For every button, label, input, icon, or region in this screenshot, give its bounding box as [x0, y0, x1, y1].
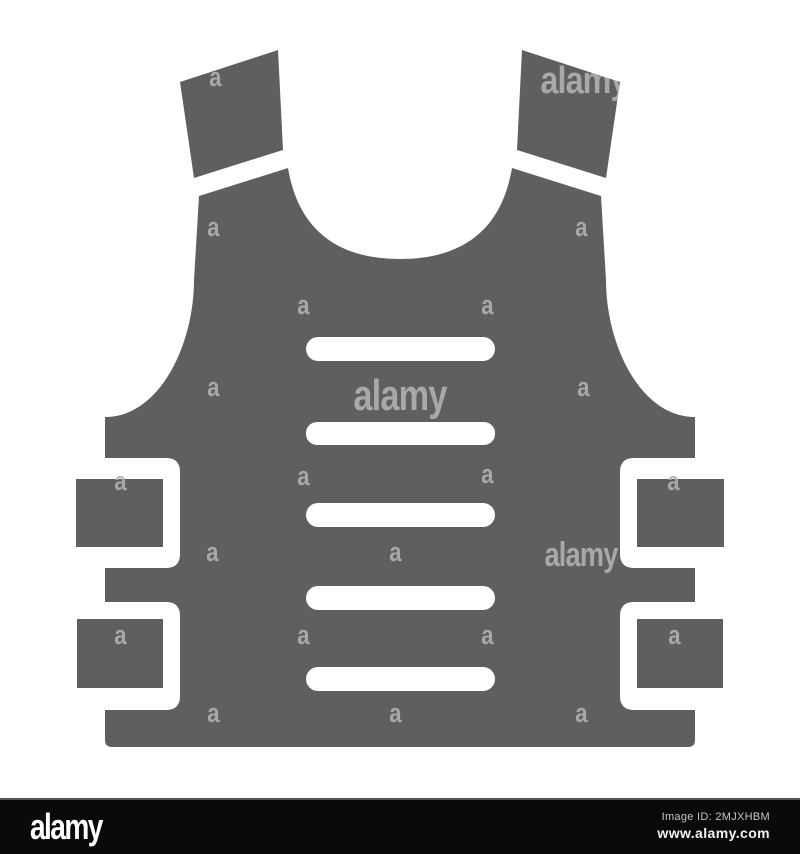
watermark-text: alamy: [540, 60, 629, 102]
watermark-text: a: [575, 699, 588, 728]
watermark-text: a: [481, 291, 494, 320]
vest-slat-2: [306, 422, 495, 445]
vest-right-lower-pouch: [637, 619, 723, 688]
watermark-text: a: [207, 373, 220, 402]
watermark-text: a: [297, 462, 310, 491]
watermark-text: alamy: [544, 535, 618, 574]
watermark-text: a: [114, 621, 127, 650]
vest-slat-3: [306, 503, 495, 527]
vest-body: [105, 168, 695, 747]
watermark-text: a: [207, 213, 220, 242]
vest-right-upper-pouch: [637, 479, 724, 547]
watermark-text: a: [575, 213, 588, 242]
vest-slat-1: [306, 337, 495, 361]
watermark-text: a: [481, 621, 494, 650]
watermark-text: alamy: [353, 371, 447, 420]
stock-photo-page: aalamyaaaaaalamyaaaaaaaalamyaaaaaaa alam…: [0, 0, 800, 854]
watermark-text: a: [389, 538, 402, 567]
vest-slat-4: [306, 586, 495, 610]
vest-left-strap: [180, 50, 283, 178]
watermark-text: a: [206, 538, 219, 567]
watermark-text: a: [389, 699, 402, 728]
vest-slat-5: [306, 667, 495, 691]
watermark-text: a: [209, 63, 222, 92]
watermark-text: a: [481, 460, 494, 489]
watermark-text: a: [297, 621, 310, 650]
watermark-text: a: [207, 699, 220, 728]
alamy-url-text: www.alamy.com: [657, 825, 770, 843]
alamy-footer-bar: alamy Image ID: 2MJXHBM www.alamy.com: [0, 798, 800, 854]
image-id-text: Image ID: 2MJXHBM: [657, 811, 770, 825]
stock-image-canvas: aalamyaaaaaalamyaaaaaaaalamyaaaaaaa: [0, 0, 800, 798]
watermark-text: a: [667, 467, 680, 496]
watermark-text: a: [297, 291, 310, 320]
footer-info: Image ID: 2MJXHBM www.alamy.com: [657, 811, 770, 842]
watermark-text: a: [577, 373, 590, 402]
alamy-logo: alamy: [30, 809, 102, 845]
watermark-text: a: [668, 621, 681, 650]
watermark-text: a: [114, 467, 127, 496]
bulletproof-vest-icon: aalamyaaaaaalamyaaaaaaaalamyaaaaaaa: [0, 0, 800, 798]
